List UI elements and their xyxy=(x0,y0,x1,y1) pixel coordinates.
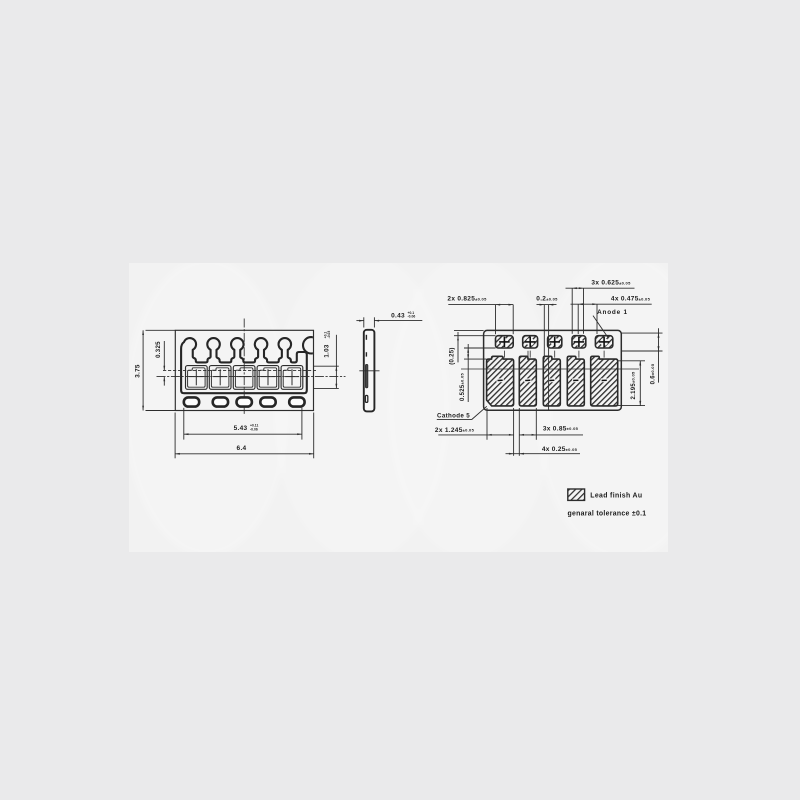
svg-text:-0.06: -0.06 xyxy=(408,315,416,319)
svg-text:-0.06: -0.06 xyxy=(250,427,258,431)
svg-text:Lead finish Au: Lead finish Au xyxy=(590,493,642,500)
svg-text:6.4: 6.4 xyxy=(237,445,247,452)
svg-text:3.75: 3.75 xyxy=(134,364,141,378)
svg-text:-0.03: -0.03 xyxy=(327,331,331,339)
svg-text:5.43: 5.43 xyxy=(234,425,248,432)
svg-text:0.43: 0.43 xyxy=(391,312,405,319)
svg-text:genaral tolerance ±0.1: genaral tolerance ±0.1 xyxy=(568,510,647,517)
svg-text:1.03: 1.03 xyxy=(324,344,331,358)
svg-text:Cathode 5: Cathode 5 xyxy=(437,413,470,420)
svg-text:0.325: 0.325 xyxy=(155,341,162,358)
svg-text:(0.25): (0.25) xyxy=(450,347,456,364)
svg-text:Anode 1: Anode 1 xyxy=(597,309,628,316)
